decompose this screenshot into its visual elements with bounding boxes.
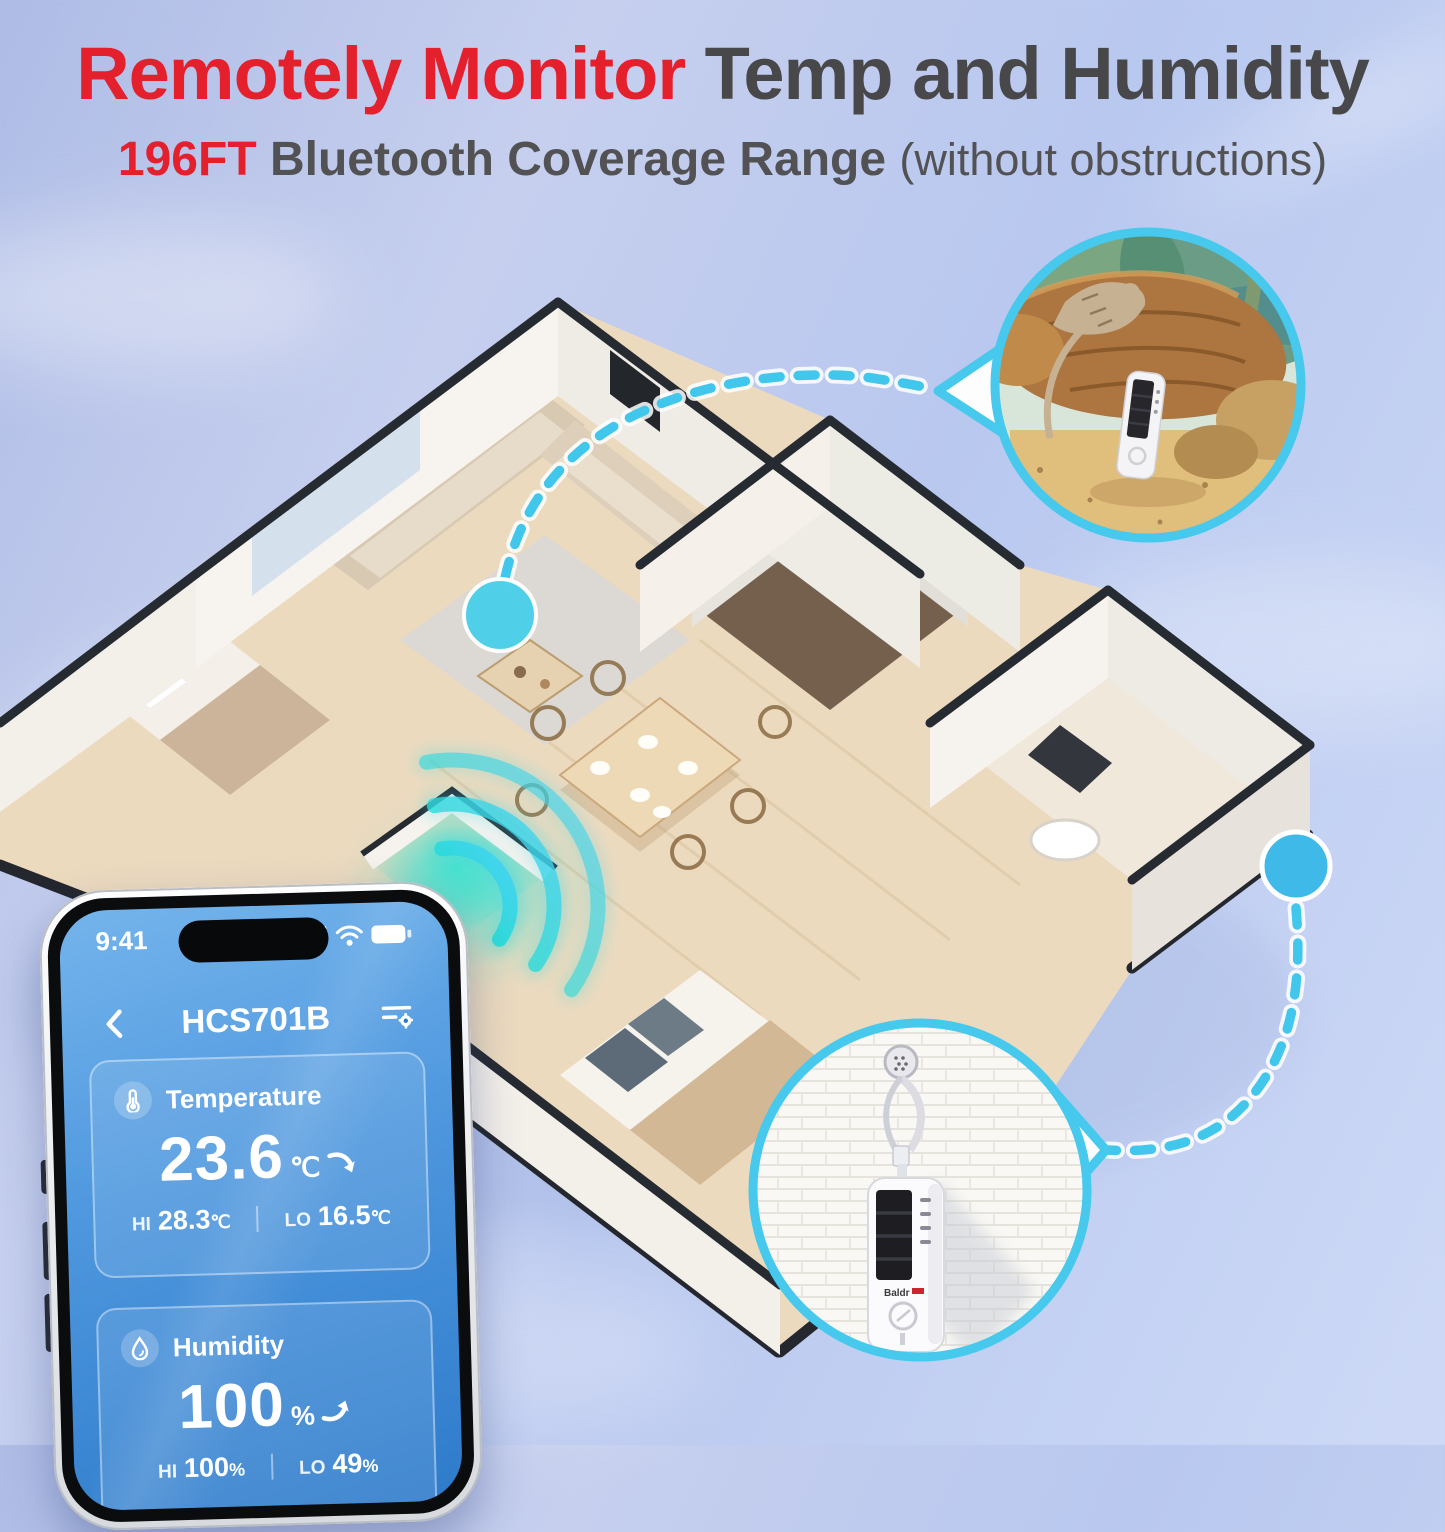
thermometer-icon bbox=[113, 1081, 152, 1120]
callout-terrarium[interactable] bbox=[915, 160, 1370, 542]
dynamic-island bbox=[178, 917, 329, 963]
lo-group: LO16.5℃ bbox=[284, 1199, 391, 1233]
title-rest: Temp and Humidity bbox=[685, 32, 1369, 115]
card-header: Temperature bbox=[91, 1053, 424, 1120]
droplet-icon bbox=[120, 1329, 159, 1368]
divider bbox=[256, 1205, 259, 1231]
lo-value: 16.5 bbox=[318, 1200, 371, 1231]
lo-unit: ℃ bbox=[370, 1207, 391, 1228]
card-label: Temperature bbox=[165, 1080, 321, 1115]
temperature-value-row: 23.6 ℃ bbox=[93, 1117, 427, 1197]
battery-icon bbox=[371, 923, 412, 944]
rock bbox=[1174, 425, 1258, 479]
back-button[interactable] bbox=[91, 1001, 136, 1046]
hi-unit: % bbox=[229, 1459, 246, 1479]
smartphone: 9:41 HCS701B bbox=[38, 880, 484, 1532]
device-brand-label: Baldr bbox=[884, 1288, 910, 1299]
trend-down-arrow-icon bbox=[326, 1147, 361, 1178]
lo-unit: % bbox=[362, 1456, 379, 1476]
card-header: Humidity bbox=[98, 1301, 431, 1368]
card-label: Humidity bbox=[172, 1329, 284, 1363]
subtitle-range: 196FT bbox=[118, 133, 257, 186]
trend-up-arrow-icon bbox=[320, 1395, 355, 1426]
table-decor bbox=[514, 666, 526, 678]
humidity-card[interactable]: Humidity 100 % HI100% LO49% bbox=[96, 1299, 438, 1511]
hi-unit: ℃ bbox=[210, 1212, 231, 1233]
lo-label: LO bbox=[299, 1457, 326, 1479]
status-time: 9:41 bbox=[95, 925, 148, 957]
header: Remotely Monitor Temp and Humidity 196FT… bbox=[0, 34, 1445, 187]
page-title: Remotely Monitor Temp and Humidity bbox=[0, 34, 1445, 114]
hi-group: HI100% bbox=[158, 1451, 246, 1484]
hi-value: 100 bbox=[184, 1452, 230, 1483]
humidity-value-row: 100 % bbox=[100, 1365, 434, 1445]
device-brand-mark bbox=[912, 1288, 924, 1294]
temperature-unit: ℃ bbox=[290, 1152, 321, 1184]
subtitle-main: Bluetooth Coverage Range bbox=[257, 133, 900, 186]
hi-lo-row: HI28.3℃ LO16.5℃ bbox=[95, 1198, 428, 1238]
humidity-unit: % bbox=[291, 1400, 316, 1432]
temperature-card[interactable]: Temperature 23.6 ℃ HI28.3℃ LO16.5℃ bbox=[89, 1051, 431, 1278]
page-subtitle: 196FT Bluetooth Coverage Range (without … bbox=[0, 132, 1445, 187]
hi-value: 28.3 bbox=[157, 1204, 210, 1235]
lo-label: LO bbox=[284, 1209, 311, 1231]
hi-group: HI28.3℃ bbox=[131, 1204, 231, 1238]
round-table bbox=[1031, 820, 1099, 860]
lo-value: 49 bbox=[332, 1448, 363, 1479]
divider bbox=[271, 1453, 274, 1479]
filter-settings-button[interactable] bbox=[375, 993, 420, 1038]
humidity-value: 100 bbox=[177, 1369, 285, 1443]
hi-label: HI bbox=[132, 1214, 152, 1236]
app-nav-bar: HCS701B bbox=[61, 993, 450, 1048]
hi-lo-row: HI100% LO49% bbox=[102, 1446, 435, 1486]
wifi-icon bbox=[335, 923, 364, 946]
sensor-dot-living-room[interactable] bbox=[464, 579, 536, 651]
hi-label: HI bbox=[158, 1461, 178, 1483]
chevron-left-icon bbox=[103, 1008, 124, 1041]
title-accent: Remotely Monitor bbox=[76, 32, 685, 115]
filter-settings-icon bbox=[379, 999, 416, 1032]
sensor-dot-exterior-wall[interactable] bbox=[1262, 832, 1330, 900]
phone-screen: 9:41 HCS701B bbox=[59, 901, 464, 1512]
temperature-value: 23.6 bbox=[158, 1121, 285, 1195]
subtitle-note: (without obstructions) bbox=[899, 134, 1327, 185]
page: { "header": { "title_accent": "Remotely … bbox=[0, 0, 1445, 1445]
lo-group: LO49% bbox=[299, 1448, 379, 1481]
table-decor bbox=[540, 679, 550, 689]
